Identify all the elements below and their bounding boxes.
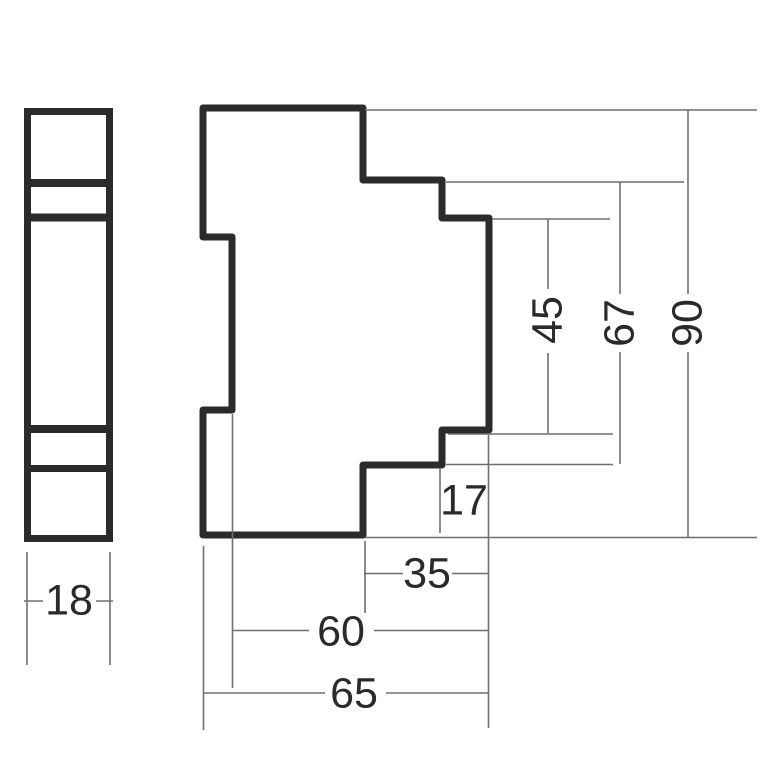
dim-label-height-45: 45 <box>527 296 570 344</box>
thin-lines-group <box>24 110 757 730</box>
dim-label-width-18: 18 <box>45 580 93 623</box>
side-view-outline <box>203 108 489 535</box>
front-view-group <box>28 112 110 539</box>
dim-label-depth-60: 60 <box>317 611 365 654</box>
dimension-drawing <box>0 0 765 765</box>
dim-label-depth-17: 17 <box>440 480 488 523</box>
dim-label-depth-35: 35 <box>403 553 451 596</box>
front-view-outline <box>28 112 110 539</box>
dim-label-depth-65: 65 <box>330 673 378 716</box>
dim-label-height-67: 67 <box>599 299 642 347</box>
technical-drawing-canvas: 18 45 67 90 17 35 60 65 <box>0 0 765 765</box>
dim-label-height-90: 90 <box>667 299 710 347</box>
